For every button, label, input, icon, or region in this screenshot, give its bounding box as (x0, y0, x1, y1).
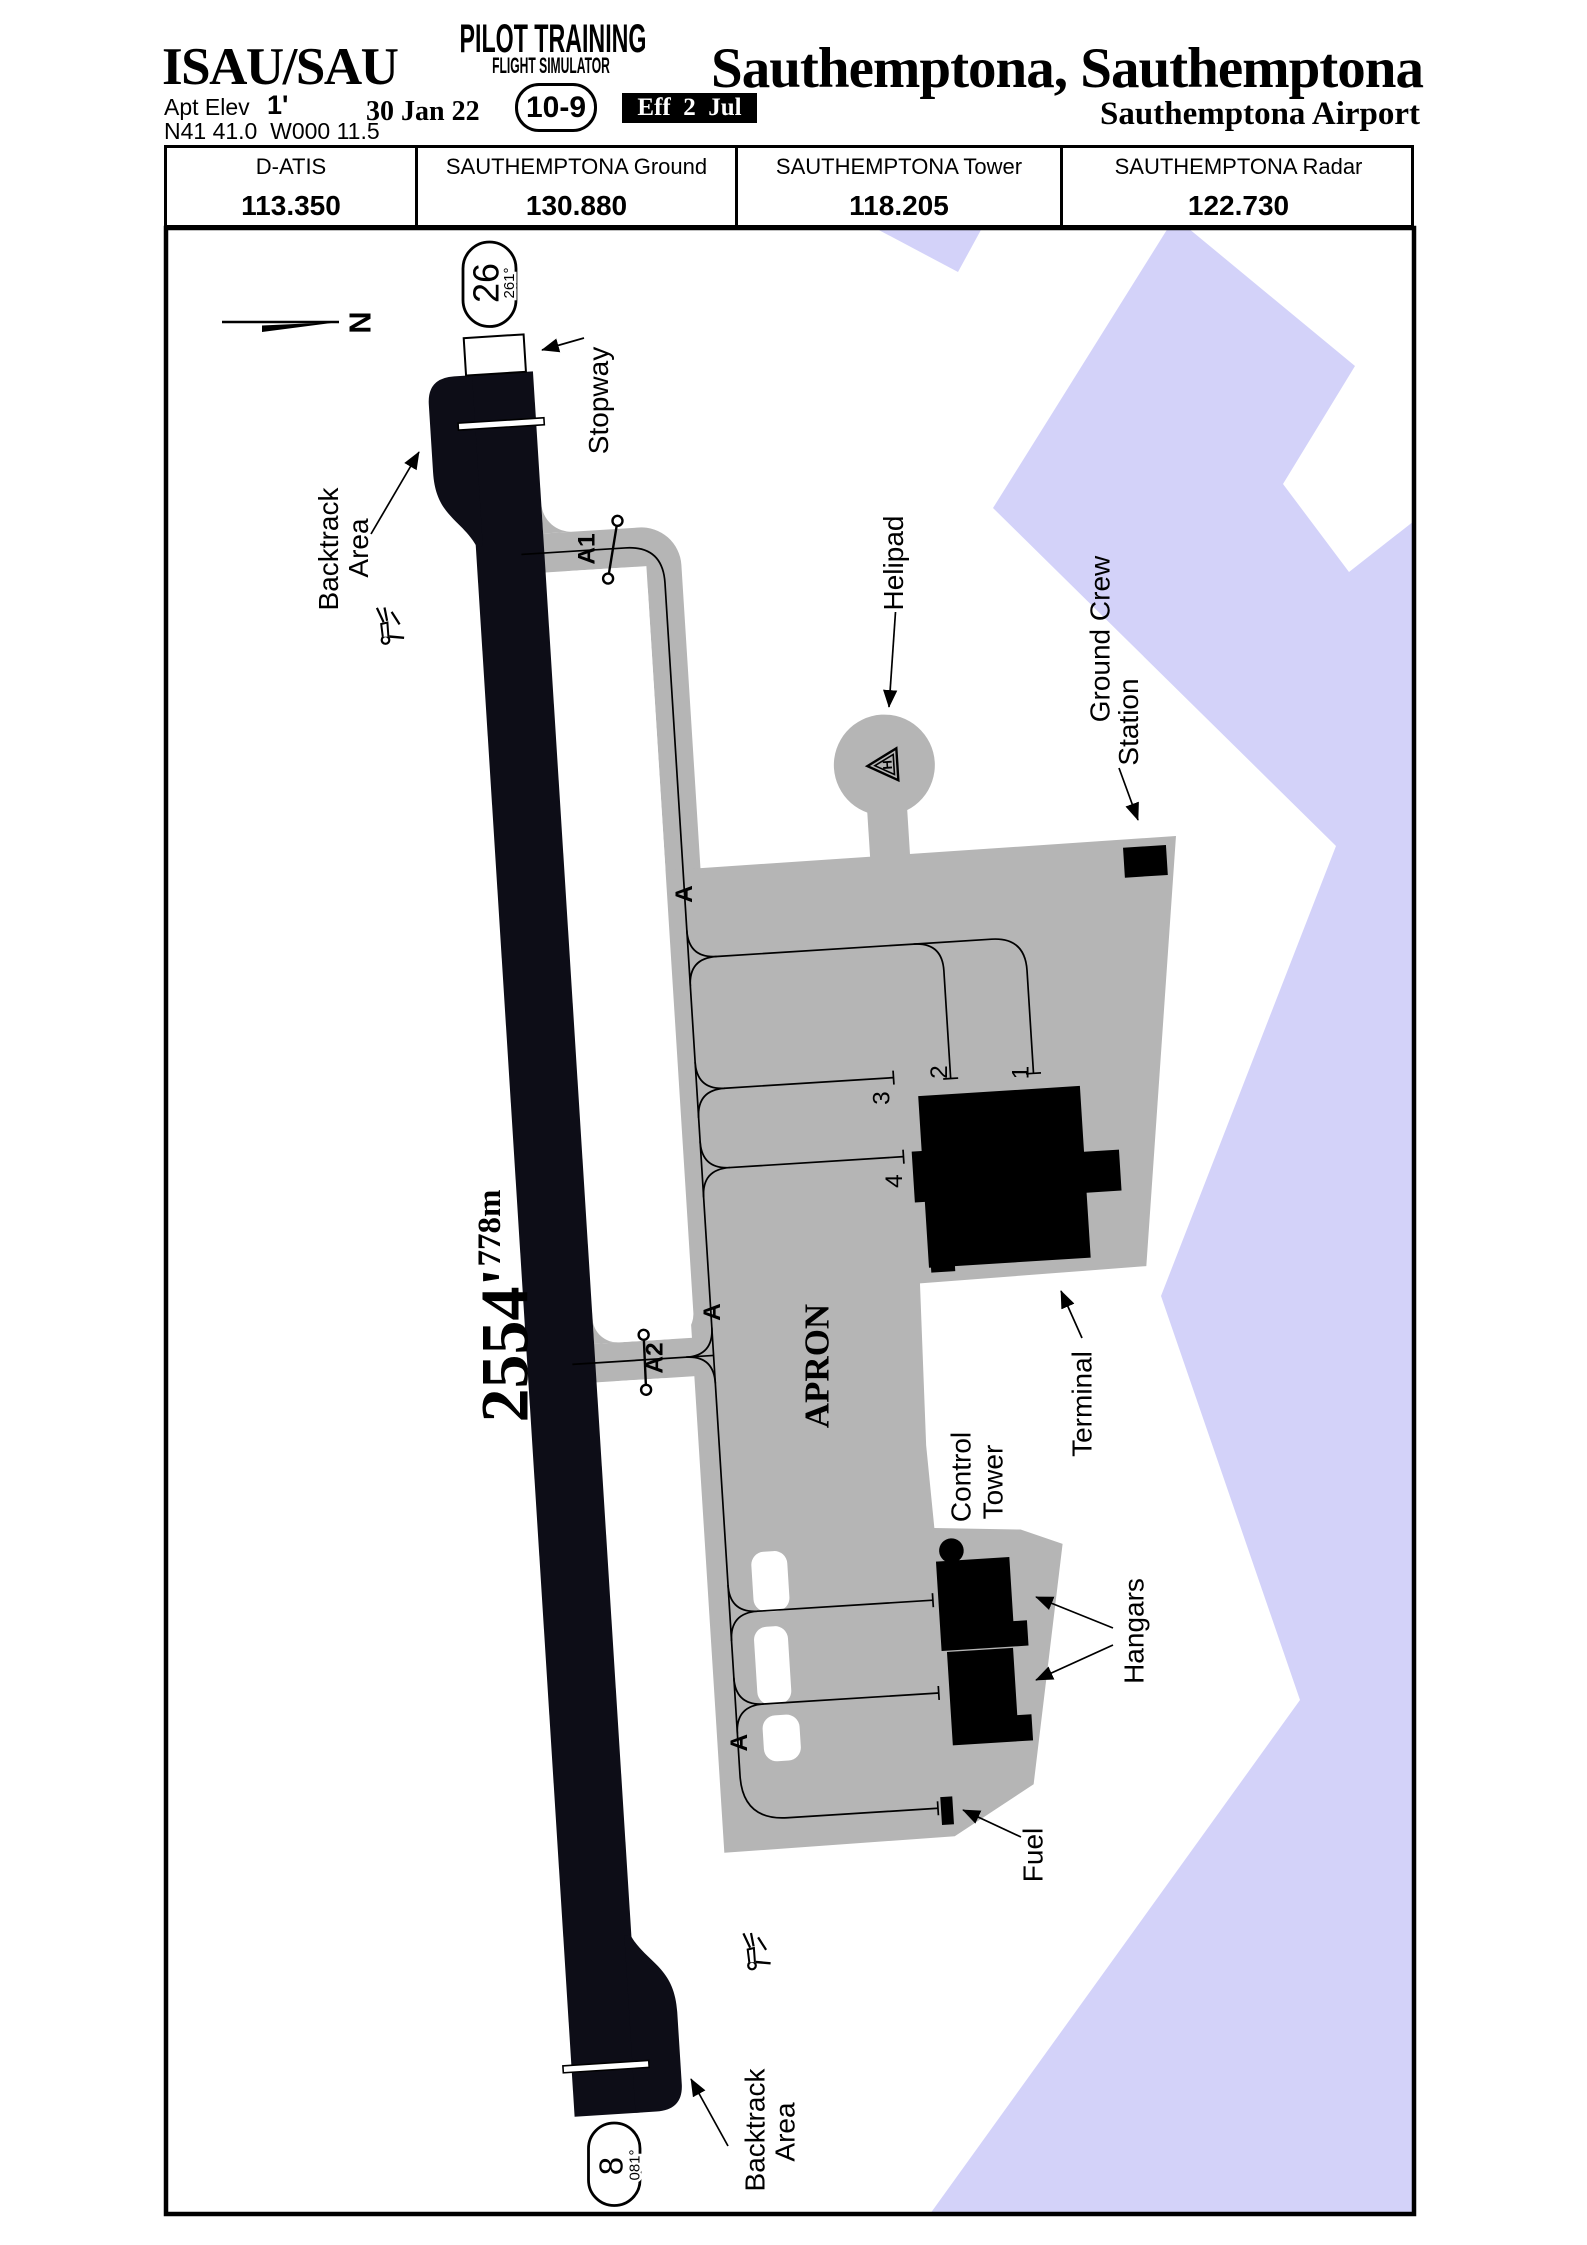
svg-text:Terminal: Terminal (1067, 1351, 1098, 1457)
svg-text:Helipad: Helipad (878, 516, 909, 611)
svg-text:8: 8 (593, 2157, 630, 2175)
svg-text:Area: Area (343, 518, 374, 578)
svg-text:Control: Control (946, 1432, 977, 1522)
svg-text:261°: 261° (501, 267, 518, 298)
svg-text:2554': 2554' (467, 1268, 543, 1423)
svg-text:Stopway: Stopway (583, 347, 614, 454)
svg-text:4: 4 (881, 1174, 908, 1188)
svg-text:A: A (671, 885, 698, 903)
svg-text:081°: 081° (627, 2149, 644, 2180)
svg-text:Tower: Tower (978, 1445, 1009, 1520)
svg-text:H: H (880, 760, 896, 770)
svg-text:2: 2 (926, 1065, 953, 1079)
svg-text:A1: A1 (574, 533, 601, 564)
svg-text:A: A (699, 1303, 726, 1321)
svg-text:APRON: APRON (798, 1304, 837, 1428)
svg-text:Hangars: Hangars (1119, 1578, 1150, 1684)
svg-text:Backtrack: Backtrack (313, 487, 344, 611)
svg-text:A2: A2 (642, 1342, 669, 1373)
svg-text:778m: 778m (472, 1190, 508, 1267)
svg-text:N: N (343, 311, 378, 333)
svg-text:Backtrack: Backtrack (740, 2068, 771, 2192)
svg-text:Station: Station (1113, 678, 1144, 765)
svg-text:Fuel: Fuel (1018, 1828, 1049, 1882)
svg-text:A: A (726, 1733, 753, 1751)
svg-text:3: 3 (869, 1091, 896, 1105)
svg-text:Ground Crew: Ground Crew (1085, 555, 1116, 722)
svg-text:1: 1 (1008, 1066, 1035, 1080)
svg-text:Area: Area (770, 2102, 801, 2162)
